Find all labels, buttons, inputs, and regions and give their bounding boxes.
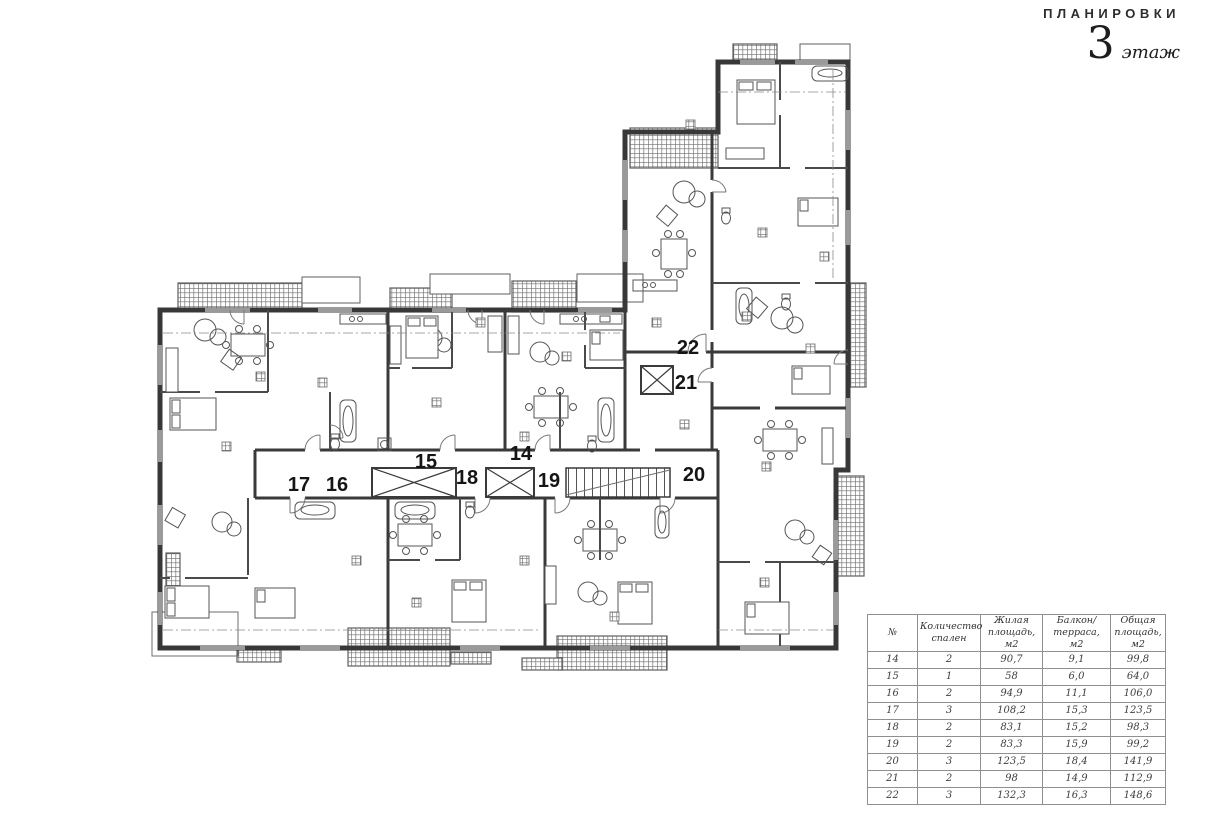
cell-living: 83,3: [981, 736, 1043, 753]
area-table: № Количество спален Жилая площадь, м2 Ба…: [867, 614, 1166, 805]
unit-label-21: 21: [675, 372, 697, 394]
cell-bedrooms: 2: [918, 685, 981, 702]
cell-living: 90,7: [981, 651, 1043, 668]
table-row: 18 2 83,1 15,2 98,3: [868, 719, 1166, 736]
staircase: [566, 468, 670, 497]
cell-number: 17: [868, 702, 918, 719]
cell-total: 106,0: [1111, 685, 1166, 702]
cell-number: 16: [868, 685, 918, 702]
cell-total: 99,8: [1111, 651, 1166, 668]
dining-set: [223, 326, 274, 365]
doors: [230, 180, 848, 513]
cell-number: 20: [868, 753, 918, 770]
table-row: 19 2 83,3 15,9 99,2: [868, 736, 1166, 753]
table-row: 21 2 98 14,9 112,9: [868, 770, 1166, 787]
col-header-bedrooms: Количество спален: [918, 615, 981, 652]
table-row: 16 2 94,9 11,1 106,0: [868, 685, 1166, 702]
cell-bedrooms: 2: [918, 719, 981, 736]
cell-balcony: 6,0: [1043, 668, 1111, 685]
col-header-total: Общая площадь, м2: [1111, 615, 1166, 652]
balconies: [166, 44, 866, 670]
col-header-balcony: Балкон/ терраса, м2: [1043, 615, 1111, 652]
cell-balcony: 14,9: [1043, 770, 1111, 787]
cell-number: 15: [868, 668, 918, 685]
cell-living: 123,5: [981, 753, 1043, 770]
cell-bedrooms: 3: [918, 787, 981, 804]
sofas: [166, 148, 833, 604]
beds: [165, 80, 838, 634]
table-row: 17 3 108,2 15,3 123,5: [868, 702, 1166, 719]
cell-total: 64,0: [1111, 668, 1166, 685]
unit-label-16: 16: [326, 474, 348, 496]
cell-bedrooms: 2: [918, 736, 981, 753]
cell-bedrooms: 2: [918, 651, 981, 668]
table-row: 22 3 132,3 16,3 148,6: [868, 787, 1166, 804]
cell-number: 21: [868, 770, 918, 787]
unit-label-14: 14: [510, 443, 533, 465]
cell-total: 99,2: [1111, 736, 1166, 753]
cell-number: 14: [868, 651, 918, 668]
porches: [152, 44, 850, 656]
cell-total: 141,9: [1111, 753, 1166, 770]
table-row: 14 2 90,7 9,1 99,8: [868, 651, 1166, 668]
cell-bedrooms: 2: [918, 770, 981, 787]
cell-balcony: 15,3: [1043, 702, 1111, 719]
cell-total: 148,6: [1111, 787, 1166, 804]
cell-balcony: 16,3: [1043, 787, 1111, 804]
col-header-number: №: [868, 615, 918, 652]
cell-number: 19: [868, 736, 918, 753]
unit-label-22: 22: [677, 337, 699, 359]
unit-label-18: 18: [456, 467, 478, 489]
cell-living: 58: [981, 668, 1043, 685]
table-row: 20 3 123,5 18,4 141,9: [868, 753, 1166, 770]
cell-living: 132,3: [981, 787, 1043, 804]
cell-total: 98,3: [1111, 719, 1166, 736]
unit-label-15: 15: [415, 451, 437, 473]
cell-total: 123,5: [1111, 702, 1166, 719]
cell-living: 94,9: [981, 685, 1043, 702]
cell-balcony: 18,4: [1043, 753, 1111, 770]
cell-number: 22: [868, 787, 918, 804]
table-header-row: № Количество спален Жилая площадь, м2 Ба…: [868, 615, 1166, 652]
cell-balcony: 15,9: [1043, 736, 1111, 753]
cell-living: 98: [981, 770, 1043, 787]
cell-bedrooms: 3: [918, 702, 981, 719]
col-header-living: Жилая площадь, м2: [981, 615, 1043, 652]
cell-balcony: 9,1: [1043, 651, 1111, 668]
cell-living: 83,1: [981, 719, 1043, 736]
unit-label-17: 17: [288, 474, 310, 496]
cell-balcony: 15,2: [1043, 719, 1111, 736]
label-stamps: [222, 120, 829, 621]
unit-label-19: 19: [538, 470, 560, 492]
unit-label-20: 20: [683, 464, 705, 486]
page: ПЛАНИРОВКИ 3 этаж: [0, 0, 1205, 813]
cell-number: 18: [868, 719, 918, 736]
cell-balcony: 11,1: [1043, 685, 1111, 702]
dining-set: [526, 388, 577, 427]
cell-bedrooms: 3: [918, 753, 981, 770]
cell-total: 112,9: [1111, 770, 1166, 787]
table-row: 15 1 58 6,0 64,0: [868, 668, 1166, 685]
dining-set: [755, 421, 806, 460]
dining-set: [653, 231, 696, 278]
dining-set: [390, 516, 441, 555]
cell-bedrooms: 1: [918, 668, 981, 685]
cell-living: 108,2: [981, 702, 1043, 719]
